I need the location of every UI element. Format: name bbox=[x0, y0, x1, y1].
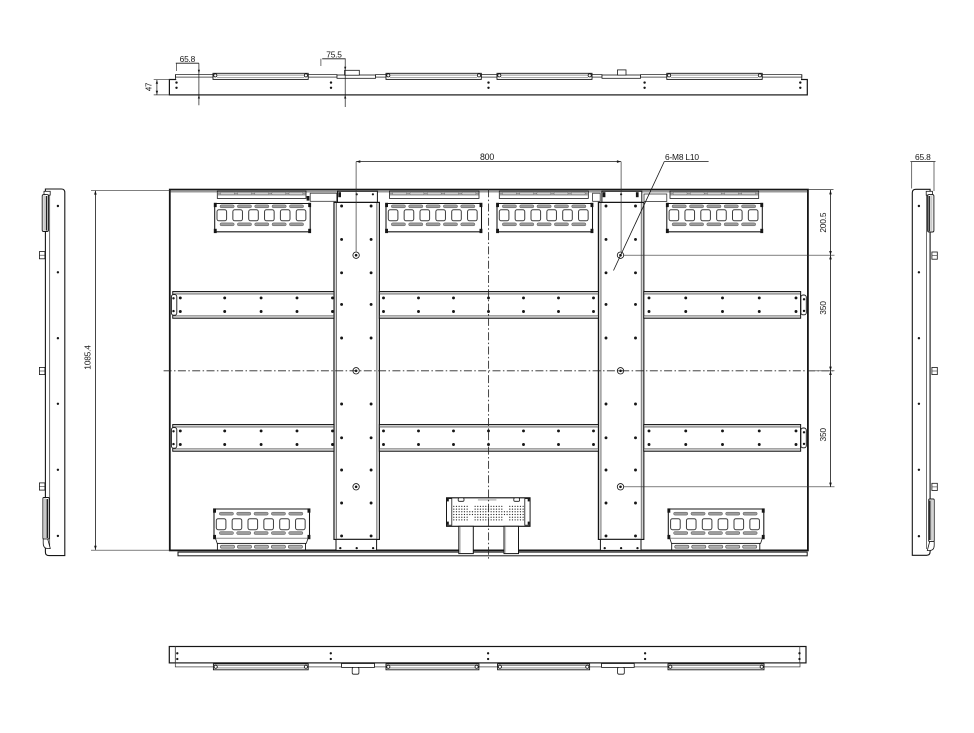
svg-text:75.5: 75.5 bbox=[326, 50, 342, 60]
svg-text:65.8: 65.8 bbox=[180, 54, 196, 64]
svg-text:6-M8 L10: 6-M8 L10 bbox=[665, 152, 699, 162]
svg-text:47: 47 bbox=[144, 83, 153, 91]
svg-text:350: 350 bbox=[818, 428, 828, 442]
svg-text:65.8: 65.8 bbox=[915, 152, 931, 162]
svg-text:800: 800 bbox=[480, 152, 494, 162]
svg-text:1085.4: 1085.4 bbox=[83, 345, 93, 370]
svg-text:200.5: 200.5 bbox=[818, 212, 828, 233]
svg-text:350: 350 bbox=[818, 301, 828, 315]
